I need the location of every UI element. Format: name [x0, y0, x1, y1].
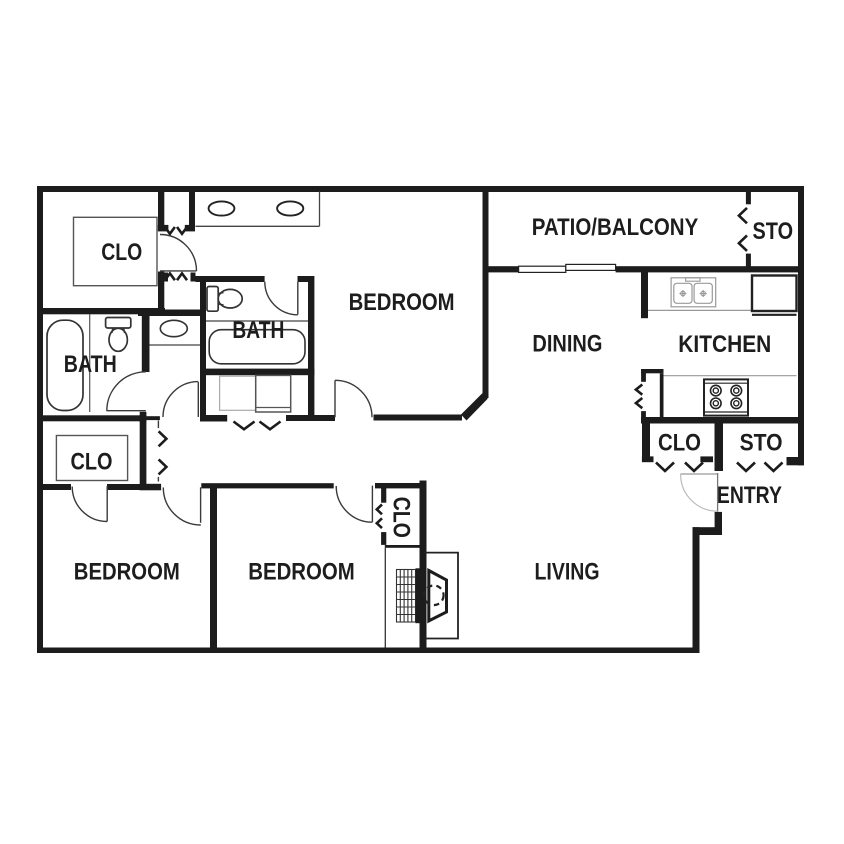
svg-text:CLO: CLO — [387, 497, 414, 538]
svg-text:PATIO/BALCONY: PATIO/BALCONY — [532, 214, 699, 241]
svg-text:BATH: BATH — [64, 351, 117, 378]
svg-text:BEDROOM: BEDROOM — [74, 558, 180, 585]
svg-text:DINING: DINING — [532, 331, 602, 358]
svg-text:CLO: CLO — [658, 430, 701, 457]
svg-text:STO: STO — [740, 430, 783, 457]
svg-text:LIVING: LIVING — [535, 559, 600, 586]
svg-text:BEDROOM: BEDROOM — [349, 289, 455, 316]
svg-text:BATH: BATH — [232, 317, 284, 344]
svg-text:CLO: CLO — [101, 239, 142, 266]
svg-text:STO: STO — [753, 218, 794, 245]
svg-text:KITCHEN: KITCHEN — [678, 331, 771, 358]
svg-text:ENTRY: ENTRY — [717, 482, 782, 509]
svg-text:CLO: CLO — [71, 448, 113, 475]
svg-text:BEDROOM: BEDROOM — [248, 558, 355, 585]
